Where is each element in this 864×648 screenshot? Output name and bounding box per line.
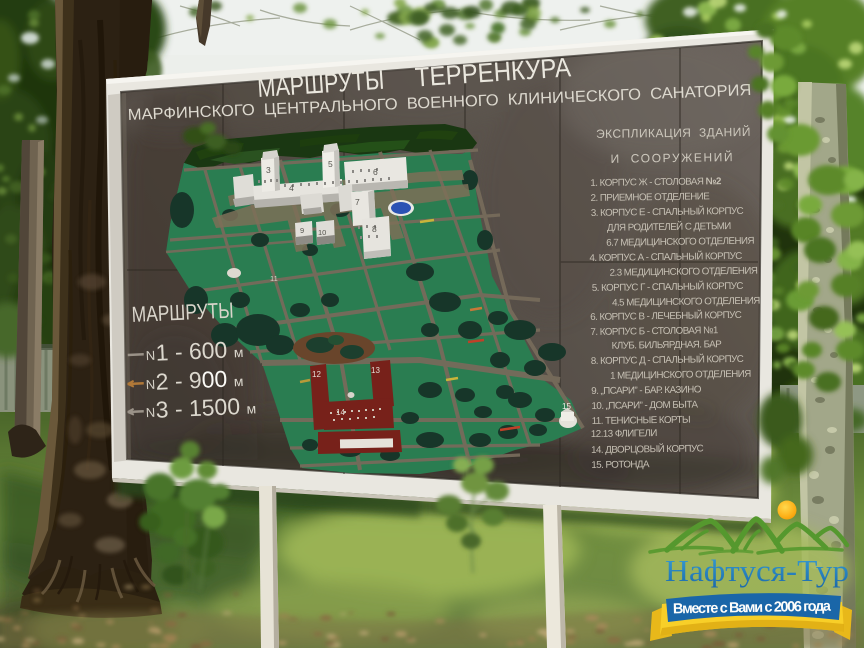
svg-text:5. КОРПУС Г - СПАЛЬНЫЙ КОРПУС: 5. КОРПУС Г - СПАЛЬНЫЙ КОРПУС xyxy=(592,280,744,294)
svg-text:2.3 МЕДИЦИНСКОГО ОТДЕЛЕНИЯ: 2.3 МЕДИЦИНСКОГО ОТДЕЛЕНИЯ xyxy=(610,266,758,279)
svg-text:6. КОРПУС В - ЛЕЧЕБНЫЙ КОРПУС: 6. КОРПУС В - ЛЕЧЕБНЫЙ КОРПУС xyxy=(590,309,742,323)
svg-text:9. „ПСАРИ” - БАР. КАЗИНО: 9. „ПСАРИ” - БАР. КАЗИНО xyxy=(591,384,702,397)
svg-text:6.7 МЕДИЦИНСКОГО ОТДЕЛЕНИЯ: 6.7 МЕДИЦИНСКОГО ОТДЕЛЕНИЯ xyxy=(606,236,754,249)
svg-text:10. „ПСАРИ” - ДОМ БЫТА: 10. „ПСАРИ” - ДОМ БЫТА xyxy=(591,399,698,411)
svg-text:9: 9 xyxy=(300,226,304,235)
svg-text:8: 8 xyxy=(372,224,377,234)
svg-text:14. ДВОРЦОВЫЙ КОРПУС: 14. ДВОРЦОВЫЙ КОРПУС xyxy=(591,442,704,456)
svg-text:Вместе с Вами с 2006 года: Вместе с Вами с 2006 года xyxy=(673,599,832,618)
svg-text:15: 15 xyxy=(562,402,571,411)
svg-text:1 МЕДИЦИНСКОГО ОТДЕЛЕНИЯ: 1 МЕДИЦИНСКОГО ОТДЕЛЕНИЯ xyxy=(610,369,751,382)
svg-text:3: 3 xyxy=(266,165,271,175)
svg-text:И СООРУЖЕНИЙ: И СООРУЖЕНИЙ xyxy=(611,149,735,166)
svg-text:10: 10 xyxy=(318,228,326,237)
svg-text:Нафтуся-Тур: Нафтуся-Тур xyxy=(665,553,849,588)
svg-text:7: 7 xyxy=(355,197,360,207)
svg-text:4.5 МЕДИЦИНСКОГО ОТДЕЛЕНИЯ: 4.5 МЕДИЦИНСКОГО ОТДЕЛЕНИЯ xyxy=(612,296,760,309)
svg-text:2 - 900 м: 2 - 900 м xyxy=(155,365,244,395)
svg-text:12.13 ФЛИГЕЛИ: 12.13 ФЛИГЕЛИ xyxy=(591,428,658,440)
svg-text:11. ТЕНИСНЫЕ КОРТЫ: 11. ТЕНИСНЫЕ КОРТЫ xyxy=(592,415,691,427)
svg-text:N: N xyxy=(145,348,155,363)
svg-text:1 - 600 м: 1 - 600 м xyxy=(155,336,244,366)
svg-text:7. КОРПУС Б - СТОЛОВАЯ №1: 7. КОРПУС Б - СТОЛОВАЯ №1 xyxy=(590,325,718,338)
svg-text:МАРШРУТЫ: МАРШРУТЫ xyxy=(131,298,234,327)
svg-text:15. РОТОНДА: 15. РОТОНДА xyxy=(591,459,650,471)
svg-text:4. КОРПУС А - СПАЛЬНЫЙ КОРПУС: 4. КОРПУС А - СПАЛЬНЫЙ КОРПУС xyxy=(589,250,742,264)
svg-text:3. КОРПУС Е - СПАЛЬНЫЙ КОРПУС: 3. КОРПУС Е - СПАЛЬНЫЙ КОРПУС xyxy=(591,205,744,219)
svg-text:N: N xyxy=(145,405,155,420)
svg-text:13: 13 xyxy=(371,366,380,375)
svg-text:14: 14 xyxy=(336,408,345,417)
svg-text:ДЛЯ РОДИТЕЛЕЙ С ДЕТЬМИ: ДЛЯ РОДИТЕЛЕЙ С ДЕТЬМИ xyxy=(607,220,731,234)
svg-text:КЛУБ. БИЛЬЯРДНАЯ. БАР: КЛУБ. БИЛЬЯРДНАЯ. БАР xyxy=(612,339,723,352)
svg-text:5: 5 xyxy=(328,159,333,169)
svg-text:3 - 1500 м: 3 - 1500 м xyxy=(155,392,256,422)
svg-text:4: 4 xyxy=(289,183,294,193)
svg-text:ЭКСПЛИКАЦИЯ ЗДАНИЙ: ЭКСПЛИКАЦИЯ ЗДАНИЙ xyxy=(596,124,752,141)
svg-text:8. КОРПУС Д - СПАЛЬНЫЙ КОРПУС: 8. КОРПУС Д - СПАЛЬНЫЙ КОРПУС xyxy=(591,353,744,367)
svg-text:12: 12 xyxy=(312,370,321,379)
svg-text:6: 6 xyxy=(373,167,378,177)
svg-text:1. КОРПУС Ж - СТОЛОВАЯ №2: 1. КОРПУС Ж - СТОЛОВАЯ №2 xyxy=(590,176,722,189)
svg-text:2. ПРИЕМНОЕ ОТДЕЛЕНИЕ: 2. ПРИЕМНОЕ ОТДЕЛЕНИЕ xyxy=(591,191,711,204)
svg-text:N: N xyxy=(145,377,155,392)
svg-text:11: 11 xyxy=(270,274,278,283)
